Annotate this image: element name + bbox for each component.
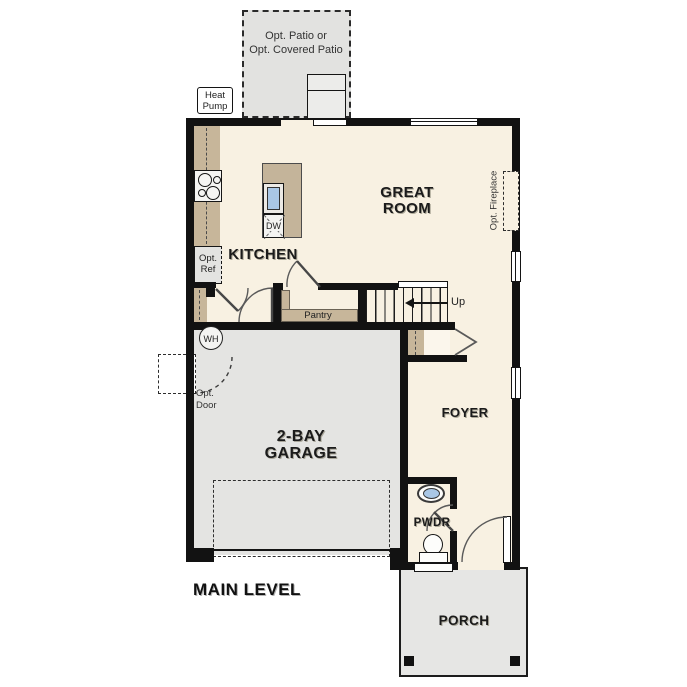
optional-door-label-2: Door — [196, 400, 217, 412]
pwdr-sink-basin — [423, 488, 440, 499]
pwdr-label: PWDR — [402, 517, 462, 529]
mud-cabinet-dashline — [199, 290, 200, 320]
burner-icon — [198, 189, 206, 197]
toilet-tank — [419, 552, 448, 563]
closet-interior — [424, 330, 450, 355]
wall-closet-bottom — [400, 355, 467, 362]
optional-patio-label-1: Opt. Patio or — [236, 29, 356, 43]
great-room-label: GREAT ROOM — [357, 185, 457, 217]
wall-left — [186, 118, 194, 562]
kitchen-label: KITCHEN — [223, 246, 303, 263]
window-top — [410, 118, 478, 126]
garage-label-1: 2-BAY — [251, 428, 351, 445]
garage-label-2: GARAGE — [251, 445, 351, 462]
optional-fireplace-label-text: Opt. Fireplace — [489, 171, 500, 231]
closet-dashline — [415, 331, 416, 355]
wall-pwdr-right-upper — [450, 477, 457, 509]
window-right-upper-line — [515, 252, 516, 281]
dishwasher-label: DW — [265, 221, 282, 231]
wall-pantry-top-stub — [273, 283, 283, 290]
water-heater: WH — [199, 326, 223, 350]
wall-pwdr-top — [400, 477, 457, 484]
heat-pump-unit: Heat Pump — [197, 87, 233, 114]
optional-fireplace — [503, 171, 519, 231]
opt-ref-label-2: Ref — [195, 264, 221, 275]
up-label: Up — [451, 296, 475, 308]
pantry-label: Pantry — [288, 310, 348, 321]
foyer-label: FOYER — [425, 405, 505, 420]
garage-door-opening — [214, 549, 390, 551]
stair-rail — [398, 281, 448, 288]
wall-pwdr-right-lower — [450, 531, 457, 562]
optional-door-label-1: Opt. — [196, 388, 217, 400]
garage-door-zone — [213, 480, 390, 557]
burner-icon — [206, 186, 220, 200]
plan-title: MAIN LEVEL — [193, 580, 301, 600]
optional-patio-label-2: Opt. Covered Patio — [236, 43, 356, 57]
porch-post — [510, 656, 520, 666]
kitchen-label-text: KITCHEN — [223, 246, 303, 263]
pwdr-label-text: PWDR — [402, 517, 462, 529]
optional-fireplace-label: Opt. Fireplace — [489, 171, 502, 231]
porch-post — [404, 656, 414, 666]
burner-icon — [198, 173, 212, 187]
optional-refrigerator: Opt. Ref — [194, 246, 222, 284]
front-door-leaf — [503, 516, 511, 563]
foyer-label-text: FOYER — [425, 405, 505, 420]
floor-plan: Heat Pump Opt. Ref — [0, 0, 687, 687]
patio-step — [307, 74, 346, 119]
optional-door-label: Opt. Door — [196, 388, 217, 412]
patio-step-line — [307, 90, 346, 91]
opt-ref-label-1: Opt. — [195, 253, 221, 264]
water-heater-label: WH — [204, 334, 219, 344]
stair-direction-line — [413, 302, 448, 304]
window-right-upper — [511, 251, 521, 282]
great-room-label-2: ROOM — [357, 201, 457, 217]
dishwasher: DW — [263, 214, 284, 238]
pantry-label-text: Pantry — [288, 310, 348, 321]
window-right-lower-line — [515, 368, 516, 398]
great-room-label-1: GREAT — [357, 185, 457, 201]
sliding-door-panel — [313, 119, 347, 126]
front-door-opening — [458, 562, 504, 570]
wall-doorA-stub — [206, 284, 215, 297]
wall-pantry-left — [273, 283, 281, 330]
stair-arrow-icon — [405, 298, 414, 308]
window-top-line — [411, 121, 477, 122]
burner-icon — [213, 176, 221, 184]
plan-title-text: MAIN LEVEL — [193, 580, 301, 600]
heat-pump-label-2: Pump — [198, 101, 232, 112]
up-label-text: Up — [451, 296, 475, 308]
optional-patio-label: Opt. Patio or Opt. Covered Patio — [236, 29, 356, 57]
kitchen-sink — [267, 187, 280, 210]
wall-garage-divider — [186, 322, 455, 330]
heat-pump-label-1: Heat — [198, 90, 232, 101]
garage-label: 2-BAY GARAGE — [251, 428, 351, 462]
porch-label-text: PORCH — [424, 613, 504, 628]
closet-shelf — [408, 330, 424, 356]
wall-garage-bottom-left-stub — [186, 548, 214, 562]
wall-pantry-stairs — [358, 283, 366, 330]
toilet-base — [414, 563, 453, 572]
porch-label: PORCH — [424, 613, 504, 628]
window-right-lower — [511, 367, 521, 399]
